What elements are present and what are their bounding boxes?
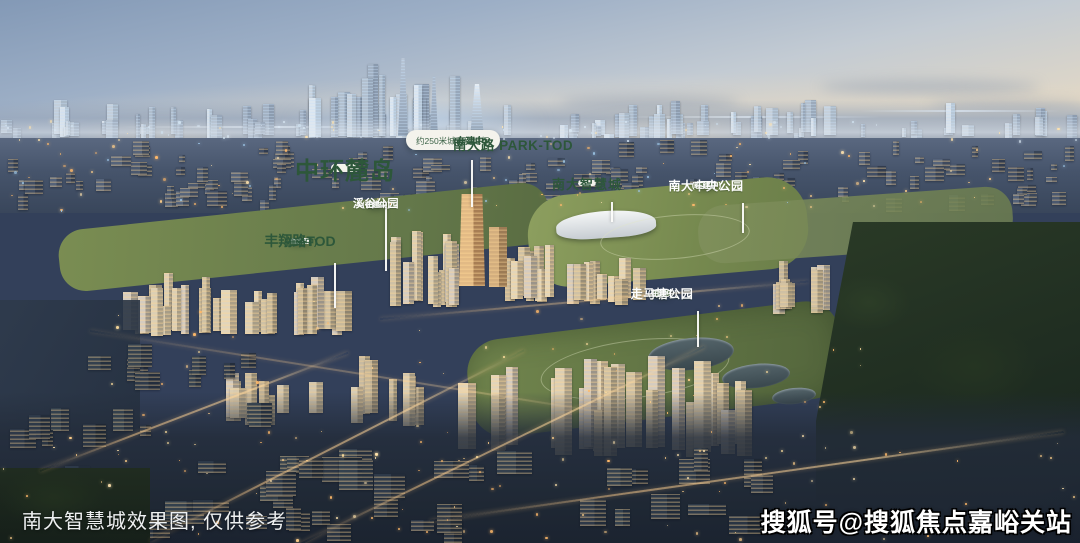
building: [867, 166, 886, 178]
light-dot: [724, 482, 726, 484]
light-dot: [256, 381, 259, 384]
building: [88, 356, 112, 370]
building: [716, 163, 731, 177]
light-dot: [584, 126, 586, 128]
caption-text: 南大智慧城效果图, 仅供参考: [22, 505, 287, 534]
building: [469, 465, 484, 482]
light-dot: [773, 121, 776, 124]
building: [574, 264, 586, 301]
light-dot: [1063, 165, 1065, 167]
light-dot: [371, 517, 373, 519]
light-dot: [206, 473, 208, 475]
building: [111, 156, 131, 166]
label-xigu-park: 溪谷公园 (在建中): [368, 202, 384, 208]
water-reflection: [860, 110, 1060, 112]
landmark-tower-secondary: [489, 227, 507, 287]
light-dot: [536, 310, 539, 313]
light-dot: [419, 330, 421, 332]
light-dot: [19, 139, 20, 140]
building: [25, 180, 43, 194]
building: [524, 256, 536, 299]
building: [838, 187, 848, 197]
light-dot: [479, 471, 481, 473]
label-status: (在建中): [454, 134, 487, 147]
light-dot: [968, 182, 970, 184]
leader-line-park-tod: [471, 160, 473, 207]
building: [780, 283, 796, 307]
light-dot: [10, 537, 12, 539]
light-dot: [604, 531, 606, 533]
building: [925, 166, 944, 181]
building: [131, 162, 147, 175]
light-dot: [118, 139, 120, 141]
building: [1008, 167, 1024, 182]
building: [249, 403, 271, 426]
aerial-render-scene: 南大路 PARK-TOD (在建中) 约250米城市新地标 中环麓岛 溪谷公园 …: [0, 0, 1080, 543]
light-dot: [70, 169, 73, 172]
light-dot: [416, 425, 418, 427]
light-dot: [441, 460, 443, 462]
light-dot: [1057, 128, 1060, 131]
building: [636, 167, 648, 173]
label-fengxiang-tod: 丰翔路TOD (在建中): [290, 238, 310, 244]
light-dot: [168, 134, 170, 136]
building: [192, 356, 206, 375]
light-dot: [1050, 457, 1052, 459]
light-dot: [545, 537, 548, 540]
light-dot: [454, 506, 455, 507]
light-dot: [342, 454, 345, 457]
light-dot: [696, 532, 698, 534]
light-dot: [69, 437, 71, 439]
building: [497, 451, 532, 475]
light-dot: [180, 199, 182, 201]
building: [245, 302, 259, 334]
light-dot: [419, 362, 421, 364]
light-dot: [582, 514, 584, 516]
light-dot: [677, 454, 679, 456]
light-dot: [186, 365, 189, 368]
building: [267, 293, 277, 333]
building: [751, 475, 773, 493]
light-dot: [198, 351, 200, 353]
light-dot: [1040, 455, 1042, 457]
building: [915, 157, 924, 163]
light-dot: [741, 304, 744, 307]
light-dot: [38, 139, 40, 141]
light-dot: [588, 390, 590, 392]
light-dot: [999, 132, 1001, 134]
light-dot: [569, 129, 572, 132]
leader-line-central-park: [742, 203, 744, 233]
light-dot: [769, 123, 771, 125]
building: [511, 261, 523, 299]
light-dot: [80, 193, 82, 195]
light-dot: [552, 437, 554, 439]
light-dot: [718, 305, 720, 307]
light-dot: [28, 177, 30, 179]
light-dot: [116, 326, 119, 329]
building: [1027, 168, 1033, 180]
building: [83, 424, 106, 446]
building: [811, 270, 823, 313]
building: [592, 160, 610, 173]
light-dot: [863, 180, 865, 182]
light-dot: [476, 456, 478, 458]
light-dot: [841, 151, 844, 154]
light-dot: [730, 155, 732, 157]
light-dot: [555, 484, 557, 486]
light-dot: [557, 169, 560, 172]
building: [259, 148, 268, 154]
light-dot: [502, 126, 504, 128]
leader-line-zoumatang-park: [697, 311, 699, 347]
building: [176, 167, 185, 175]
light-dot: [950, 170, 952, 172]
light-dot: [178, 121, 181, 124]
building: [96, 179, 110, 191]
light-dot: [1075, 139, 1077, 141]
light-dot: [278, 126, 280, 128]
label-nandalu-park-tod: 南大路 PARK-TOD (在建中) 约250米城市新地标: [406, 130, 500, 150]
building: [526, 163, 535, 170]
light-dot: [563, 160, 565, 162]
light-dot: [627, 140, 629, 142]
light-dot: [285, 149, 288, 152]
light-dot: [223, 137, 225, 139]
light-dot: [493, 177, 495, 179]
light-dot: [117, 450, 119, 452]
building: [276, 141, 288, 155]
building: [691, 140, 707, 156]
label-nanda-smart-city: 南大智慧城: [578, 180, 596, 186]
building: [607, 468, 632, 486]
light-dot: [687, 477, 689, 479]
light-dot: [793, 462, 796, 465]
light-dot: [562, 458, 565, 461]
light-dot: [160, 200, 163, 203]
label-title: 中环麓岛: [295, 151, 395, 186]
light-dot: [464, 181, 467, 184]
label-status: (在建中): [362, 201, 390, 209]
label-status: (在建中): [648, 288, 677, 299]
light-dot: [853, 446, 856, 449]
building: [403, 262, 415, 304]
building: [167, 186, 174, 199]
light-dot: [305, 136, 308, 139]
building: [1051, 164, 1057, 170]
building: [893, 141, 899, 156]
label-title: 南大智慧城: [552, 174, 622, 193]
building: [688, 504, 727, 516]
building: [783, 160, 800, 169]
building: [29, 415, 50, 439]
light-dot: [316, 327, 319, 330]
light-dot: [420, 124, 422, 126]
light-dot: [860, 365, 861, 366]
building: [8, 159, 18, 173]
building: [992, 159, 1005, 172]
building: [1052, 192, 1066, 205]
building: [910, 176, 920, 189]
building: [431, 165, 450, 170]
leader-line-smart-city: [611, 202, 613, 222]
building: [172, 288, 181, 330]
light-dot: [688, 379, 689, 380]
light-dot: [503, 129, 505, 131]
building: [197, 167, 209, 182]
building: [660, 140, 674, 153]
building: [336, 291, 352, 332]
light-dot: [332, 121, 335, 124]
light-dot: [657, 143, 660, 146]
light-dot: [26, 495, 28, 497]
light-dot: [458, 460, 460, 462]
light-dot: [298, 124, 301, 127]
building: [135, 372, 160, 391]
building: [597, 274, 606, 299]
light-dot: [856, 182, 859, 185]
building: [619, 142, 634, 157]
light-dot: [560, 204, 562, 206]
building: [859, 152, 870, 165]
light-dot: [920, 201, 922, 203]
building: [580, 499, 606, 527]
building: [76, 181, 83, 190]
building: [1046, 177, 1057, 182]
light-dot: [296, 539, 299, 542]
light-dot: [193, 333, 196, 336]
light-dot: [353, 515, 355, 517]
light-dot: [277, 157, 279, 159]
light-dot: [194, 203, 196, 205]
light-dot: [331, 126, 333, 128]
light-dot: [246, 181, 249, 184]
light-dot: [199, 311, 202, 314]
light-dot: [197, 125, 199, 127]
watermark-text: 搜狐号@搜狐焦点嘉峪关站: [761, 503, 1072, 539]
light-dot: [219, 127, 221, 129]
building: [519, 174, 526, 183]
building: [286, 508, 301, 530]
building: [66, 173, 75, 183]
light-dot: [591, 132, 593, 134]
building: [151, 288, 163, 336]
light-dot: [580, 318, 583, 321]
leader-line-fengxiang-tod: [334, 263, 336, 308]
light-dot: [22, 182, 24, 184]
light-dot: [852, 121, 854, 123]
building: [298, 288, 307, 335]
building: [1024, 151, 1041, 159]
building: [221, 290, 237, 334]
building: [277, 164, 287, 172]
light-dot: [47, 143, 49, 145]
building: [1013, 194, 1024, 204]
building: [181, 285, 189, 333]
light-dot: [833, 349, 835, 351]
light-dot: [50, 120, 53, 123]
light-dot: [194, 444, 196, 446]
label-nanda-central-park: 南大中央公园 (在建中): [697, 181, 715, 189]
building: [694, 448, 709, 471]
light-dot: [232, 336, 234, 338]
light-dot: [739, 538, 742, 541]
building: [615, 279, 628, 306]
leader-line-zhonghuan-ludao: [385, 203, 387, 271]
light-dot: [586, 343, 588, 345]
light-dot: [5, 125, 7, 127]
light-dot: [268, 431, 270, 433]
building: [207, 191, 226, 205]
label-status: (在建中): [692, 180, 721, 191]
building: [312, 511, 330, 525]
light-dot: [1019, 140, 1022, 143]
building: [113, 409, 133, 432]
light-dot: [95, 152, 97, 154]
label-zhonghuan-ludao: 中环麓岛: [331, 164, 359, 172]
light-dot: [155, 156, 158, 159]
label-zoumatang-park: 走马塘公园 (在建中): [653, 289, 671, 297]
building: [615, 509, 630, 526]
building: [972, 146, 978, 157]
light-dot: [375, 453, 377, 455]
light-dot: [330, 496, 332, 498]
light-dot: [607, 460, 609, 462]
building: [480, 157, 492, 171]
building: [428, 256, 438, 305]
light-dot: [905, 190, 907, 192]
building: [224, 363, 235, 379]
landmark-tower: [459, 194, 485, 286]
light-dot: [108, 484, 111, 487]
light-dot: [802, 435, 804, 437]
building: [133, 141, 149, 154]
building: [18, 194, 28, 210]
light-dot: [593, 152, 596, 155]
landmark-tower-tertiary: [441, 237, 457, 289]
building: [390, 242, 401, 307]
building: [50, 177, 62, 187]
light-dot: [685, 129, 687, 131]
building: [651, 494, 680, 519]
light-dot: [316, 135, 319, 138]
light-dot: [14, 171, 17, 174]
light-dot: [780, 126, 782, 128]
light-dot: [184, 470, 186, 472]
building: [339, 460, 373, 490]
building: [128, 344, 152, 367]
light-dot: [783, 187, 785, 189]
building: [327, 524, 351, 541]
building: [180, 188, 198, 197]
light-dot: [125, 460, 127, 462]
light-dot: [670, 335, 672, 337]
light-dot: [63, 165, 65, 167]
light-dot: [163, 178, 166, 181]
building: [179, 155, 185, 163]
label-status: (在建中): [284, 235, 317, 248]
building: [269, 185, 277, 200]
building: [198, 461, 226, 473]
light-dot: [377, 129, 379, 131]
building: [51, 408, 69, 431]
building: [202, 277, 210, 333]
light-dot: [142, 414, 144, 416]
light-dot: [360, 136, 362, 138]
cloud: [820, 80, 1040, 94]
building: [886, 171, 896, 185]
light-dot: [595, 132, 597, 134]
light-dot: [309, 133, 311, 135]
light-dot: [161, 383, 164, 386]
light-dot: [283, 121, 285, 123]
light-dot: [860, 348, 861, 349]
light-dot: [71, 125, 73, 127]
light-dot: [443, 373, 445, 375]
building: [545, 245, 554, 297]
light-dot: [765, 457, 767, 459]
light-dot: [703, 450, 705, 452]
light-dot: [112, 145, 115, 148]
light-dot: [726, 336, 728, 338]
building: [1065, 146, 1074, 161]
